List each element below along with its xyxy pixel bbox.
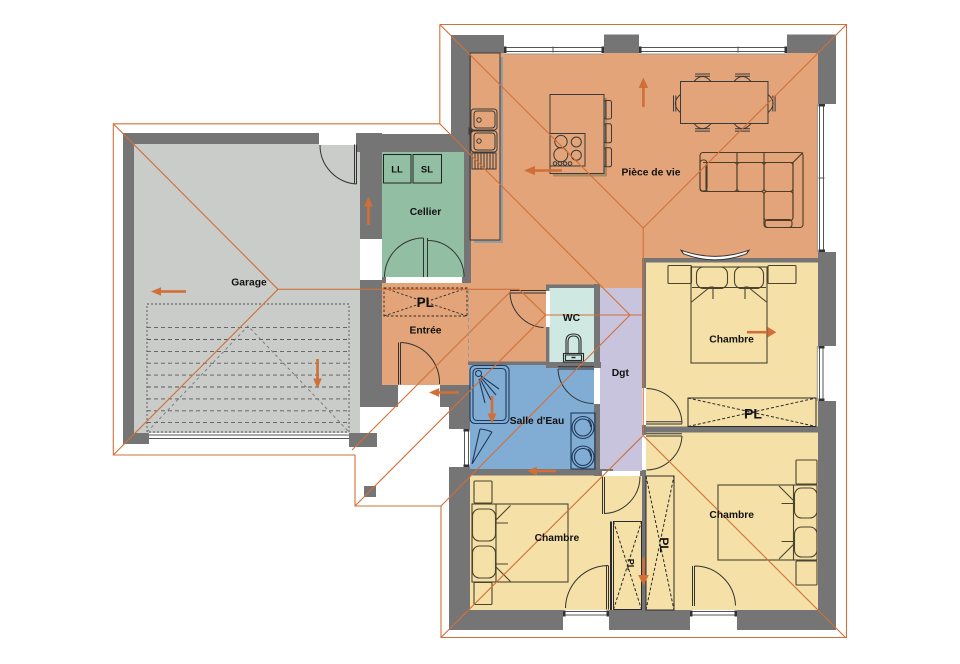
svg-text:Cellier: Cellier — [410, 207, 441, 218]
svg-text:Chambre: Chambre — [709, 510, 754, 521]
svg-text:SL: SL — [421, 165, 433, 176]
svg-text:PL: PL — [626, 559, 636, 571]
svg-text:PL: PL — [417, 295, 434, 310]
svg-text:Dgt: Dgt — [612, 368, 630, 379]
svg-text:PL: PL — [744, 406, 762, 422]
svg-text:PL: PL — [657, 537, 671, 552]
svg-text:Salle d'Eau: Salle d'Eau — [510, 416, 565, 427]
svg-text:Chambre: Chambre — [535, 533, 580, 544]
svg-text:LL: LL — [391, 165, 403, 176]
svg-text:Garage: Garage — [231, 278, 267, 289]
svg-text:WC: WC — [563, 313, 581, 324]
svg-text:Chambre: Chambre — [709, 334, 754, 345]
svg-text:Pièce de vie: Pièce de vie — [622, 167, 681, 178]
svg-text:Entrée: Entrée — [409, 326, 441, 337]
